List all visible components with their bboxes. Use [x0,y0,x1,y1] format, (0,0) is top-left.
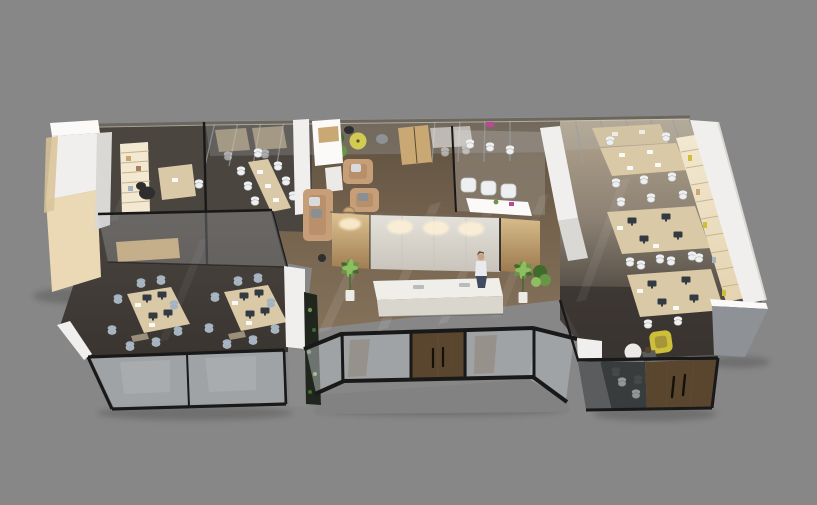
magazine [509,202,514,206]
cafe-chair [344,126,354,134]
conference-chair [237,166,245,175]
render-canvas [0,0,817,505]
wood-cabinet-front [645,359,718,409]
laptop [172,178,178,182]
office-floorplan-render [0,0,817,505]
sofa [303,189,333,241]
task-chair [211,292,220,301]
shelf-accent [486,122,494,127]
entrance-door [412,330,464,380]
office-chair [617,197,625,206]
armchair [343,159,373,184]
armchair [350,188,379,212]
entrance-side-pillar [284,266,305,349]
desk-row-0 [592,124,668,147]
task-chair [114,294,123,303]
floor-lamp [318,254,326,262]
guest-chair [195,179,203,188]
office-chair [612,178,620,187]
waiting-chair [466,139,474,148]
office-chair [637,260,645,269]
cafe-chair [376,134,388,144]
